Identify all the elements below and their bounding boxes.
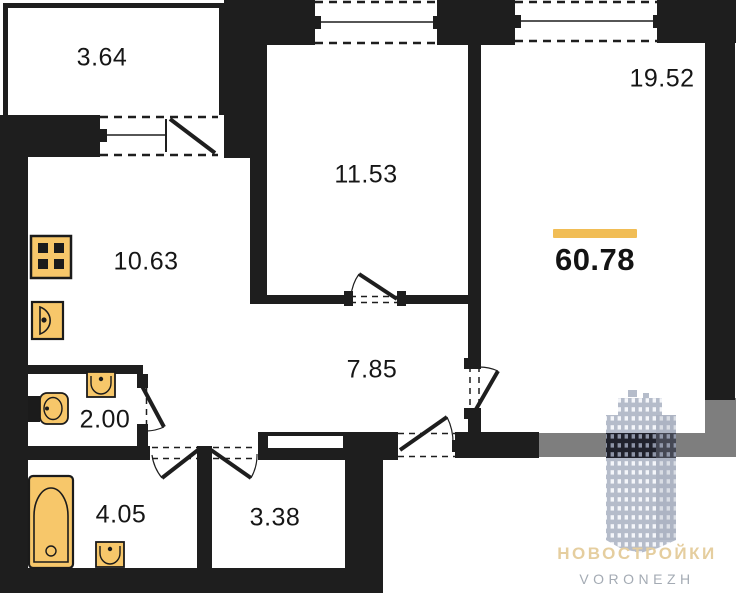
wall xyxy=(28,365,143,374)
washbasin-icon xyxy=(87,372,115,397)
wall xyxy=(28,446,150,460)
total-area-block: 60.78 xyxy=(545,229,645,278)
wall xyxy=(0,115,100,157)
door-swing-icon xyxy=(351,274,397,299)
room-area-label-bathroom: 4.05 xyxy=(96,501,147,530)
accent-bar xyxy=(553,229,637,238)
wall xyxy=(468,45,481,365)
room-area-label-wc: 2.00 xyxy=(80,406,131,435)
stove-icon xyxy=(31,236,71,278)
kitchen-sink-icon xyxy=(32,302,63,339)
floor-plan: 3.64 10.63 11.53 19.52 7.85 2.00 4.05 3.… xyxy=(0,0,736,600)
wall xyxy=(400,295,470,304)
wall xyxy=(255,295,352,304)
watermark-subtitle: VORONEZH xyxy=(541,571,733,587)
toilet-icon xyxy=(28,393,68,424)
wall xyxy=(0,115,28,593)
window-icon xyxy=(512,2,662,41)
balcony-window-door xyxy=(98,117,218,155)
room-area-label-balcony: 3.64 xyxy=(77,44,128,73)
grey-wall xyxy=(705,398,736,457)
wall xyxy=(250,40,267,304)
total-area-value: 60.78 xyxy=(545,242,645,278)
washbasin-icon xyxy=(96,542,124,567)
window-icon xyxy=(312,2,442,43)
room-area-label-storage: 3.38 xyxy=(250,504,301,533)
bathtub-icon xyxy=(29,476,73,568)
door-jamb xyxy=(397,291,406,306)
wall xyxy=(657,0,736,43)
wall xyxy=(437,0,515,45)
room-area-label-room-2: 19.52 xyxy=(629,65,694,94)
door-swing-icon xyxy=(211,450,257,478)
door-swing-icon xyxy=(152,450,198,478)
windows xyxy=(98,2,662,155)
wall xyxy=(0,568,383,593)
door-jamb xyxy=(137,424,148,448)
wall xyxy=(705,43,735,400)
wall xyxy=(455,432,539,458)
room-area-label-hallway: 7.85 xyxy=(347,356,398,385)
wall-niche xyxy=(268,436,343,448)
room-area-label-room-1: 11.53 xyxy=(334,161,397,190)
wall xyxy=(197,446,212,568)
watermark-building-icon xyxy=(606,390,676,553)
door-jamb xyxy=(464,408,481,419)
door-swing-icon xyxy=(170,119,215,153)
watermark-title: НОВОСТРОЙКИ xyxy=(541,544,733,564)
wall xyxy=(245,0,315,45)
room-area-label-kitchen: 10.63 xyxy=(113,248,178,277)
